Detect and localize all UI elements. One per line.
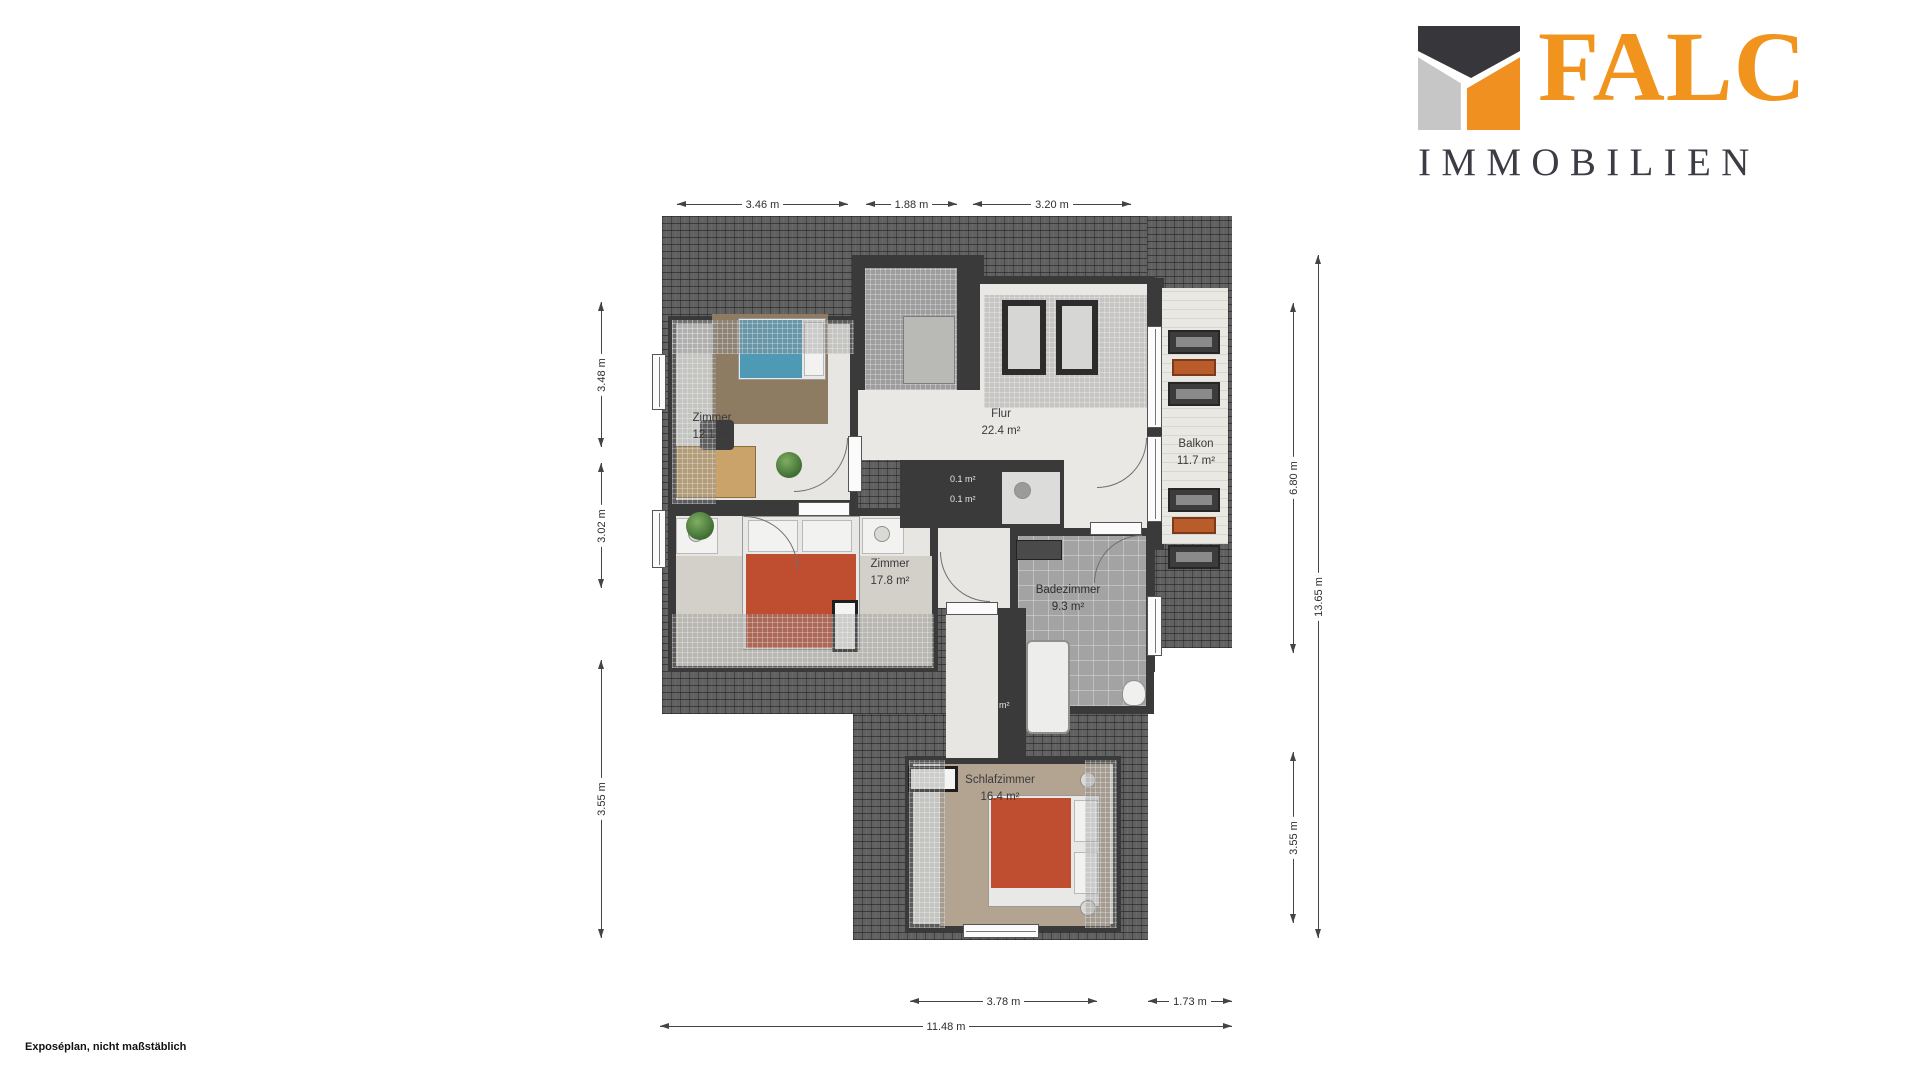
- plant-icon: [686, 512, 714, 540]
- dimension-left-3: 3.55 m: [594, 660, 610, 938]
- dimension-bottom-3: 11.48 m: [660, 1019, 1232, 1035]
- window: [652, 354, 666, 410]
- dimension-top-1: 3.46 m: [677, 197, 848, 213]
- door-opening: [798, 502, 850, 516]
- dimension-left-1: 3.48 m: [594, 302, 610, 447]
- dimension-top-3: 3.20 m: [973, 197, 1131, 213]
- window: [652, 510, 666, 568]
- flur-left-extension: [858, 390, 984, 460]
- niche-label: 0.1 m²: [950, 474, 976, 484]
- brand-name: FALC: [1538, 14, 1898, 132]
- closet-wardrobe: [903, 316, 955, 384]
- window: [1147, 596, 1162, 656]
- door-opening: [946, 602, 998, 615]
- room-label-zimmer2: Zimmer 17.8 m²: [871, 556, 910, 589]
- balcony-bench: [1168, 488, 1220, 512]
- window: [1147, 326, 1162, 428]
- dimension-right-1: 6.80 m: [1286, 303, 1302, 653]
- room-label-bad: Badezimmer 9.3 m²: [1036, 582, 1101, 615]
- shower-head-icon: [1014, 482, 1031, 499]
- roof-window-icon: [1056, 300, 1098, 375]
- room-label-balkon: Balkon 11.7 m²: [1177, 436, 1215, 469]
- washbasin: [1016, 540, 1062, 560]
- roof-window-icon: [1002, 300, 1046, 375]
- room-label-zimmer1: Zimmer 12.1 m²: [693, 410, 732, 443]
- balcony-table: [1172, 359, 1216, 376]
- niche-wall: [998, 608, 1026, 756]
- room-label-schlafzimmer: Schlafzimmer 16.4 m²: [965, 772, 1035, 805]
- niche-label: 0.4 m²: [984, 700, 1010, 710]
- balcony-bench: [1168, 545, 1220, 569]
- balcony-door: [1147, 436, 1162, 522]
- dimension-right-2: 13.65 m: [1311, 255, 1327, 938]
- door-opening: [1090, 522, 1142, 535]
- dimension-right-3: 3.55 m: [1286, 752, 1302, 923]
- toilet: [1122, 680, 1146, 706]
- niche-label: 0.1 m²: [950, 494, 976, 504]
- dimension-bottom-2: 1.73 m: [1148, 994, 1232, 1010]
- balcony-bench: [1168, 382, 1220, 406]
- balcony-table: [1172, 517, 1216, 534]
- falc-logo-icon: [1418, 26, 1520, 130]
- slope-hatch: [1085, 760, 1117, 928]
- balcony-bench: [1168, 330, 1220, 354]
- window: [963, 924, 1039, 938]
- room-label-flur: Flur 22.4 m²: [982, 406, 1021, 439]
- lamp-icon: [874, 526, 890, 542]
- door-opening: [848, 436, 862, 492]
- bed-pillow: [802, 520, 852, 552]
- shower-cabin: [1002, 472, 1060, 524]
- dimension-top-2: 1.88 m: [866, 197, 957, 213]
- corridor: [946, 608, 998, 758]
- footer-note: Exposéplan, nicht maßstäblich: [25, 1041, 186, 1053]
- dimension-bottom-1: 3.78 m: [910, 994, 1097, 1010]
- brand-subtitle: IMMOBILIEN: [1418, 140, 1896, 185]
- dimension-left-2: 3.02 m: [594, 463, 610, 588]
- bed-red-blanket: [991, 798, 1071, 888]
- bathtub: [1026, 640, 1070, 734]
- floorplan-page: FALC IMMOBILIEN: [0, 0, 1920, 1080]
- slope-hatch: [909, 760, 945, 928]
- slope-hatch: [672, 614, 934, 668]
